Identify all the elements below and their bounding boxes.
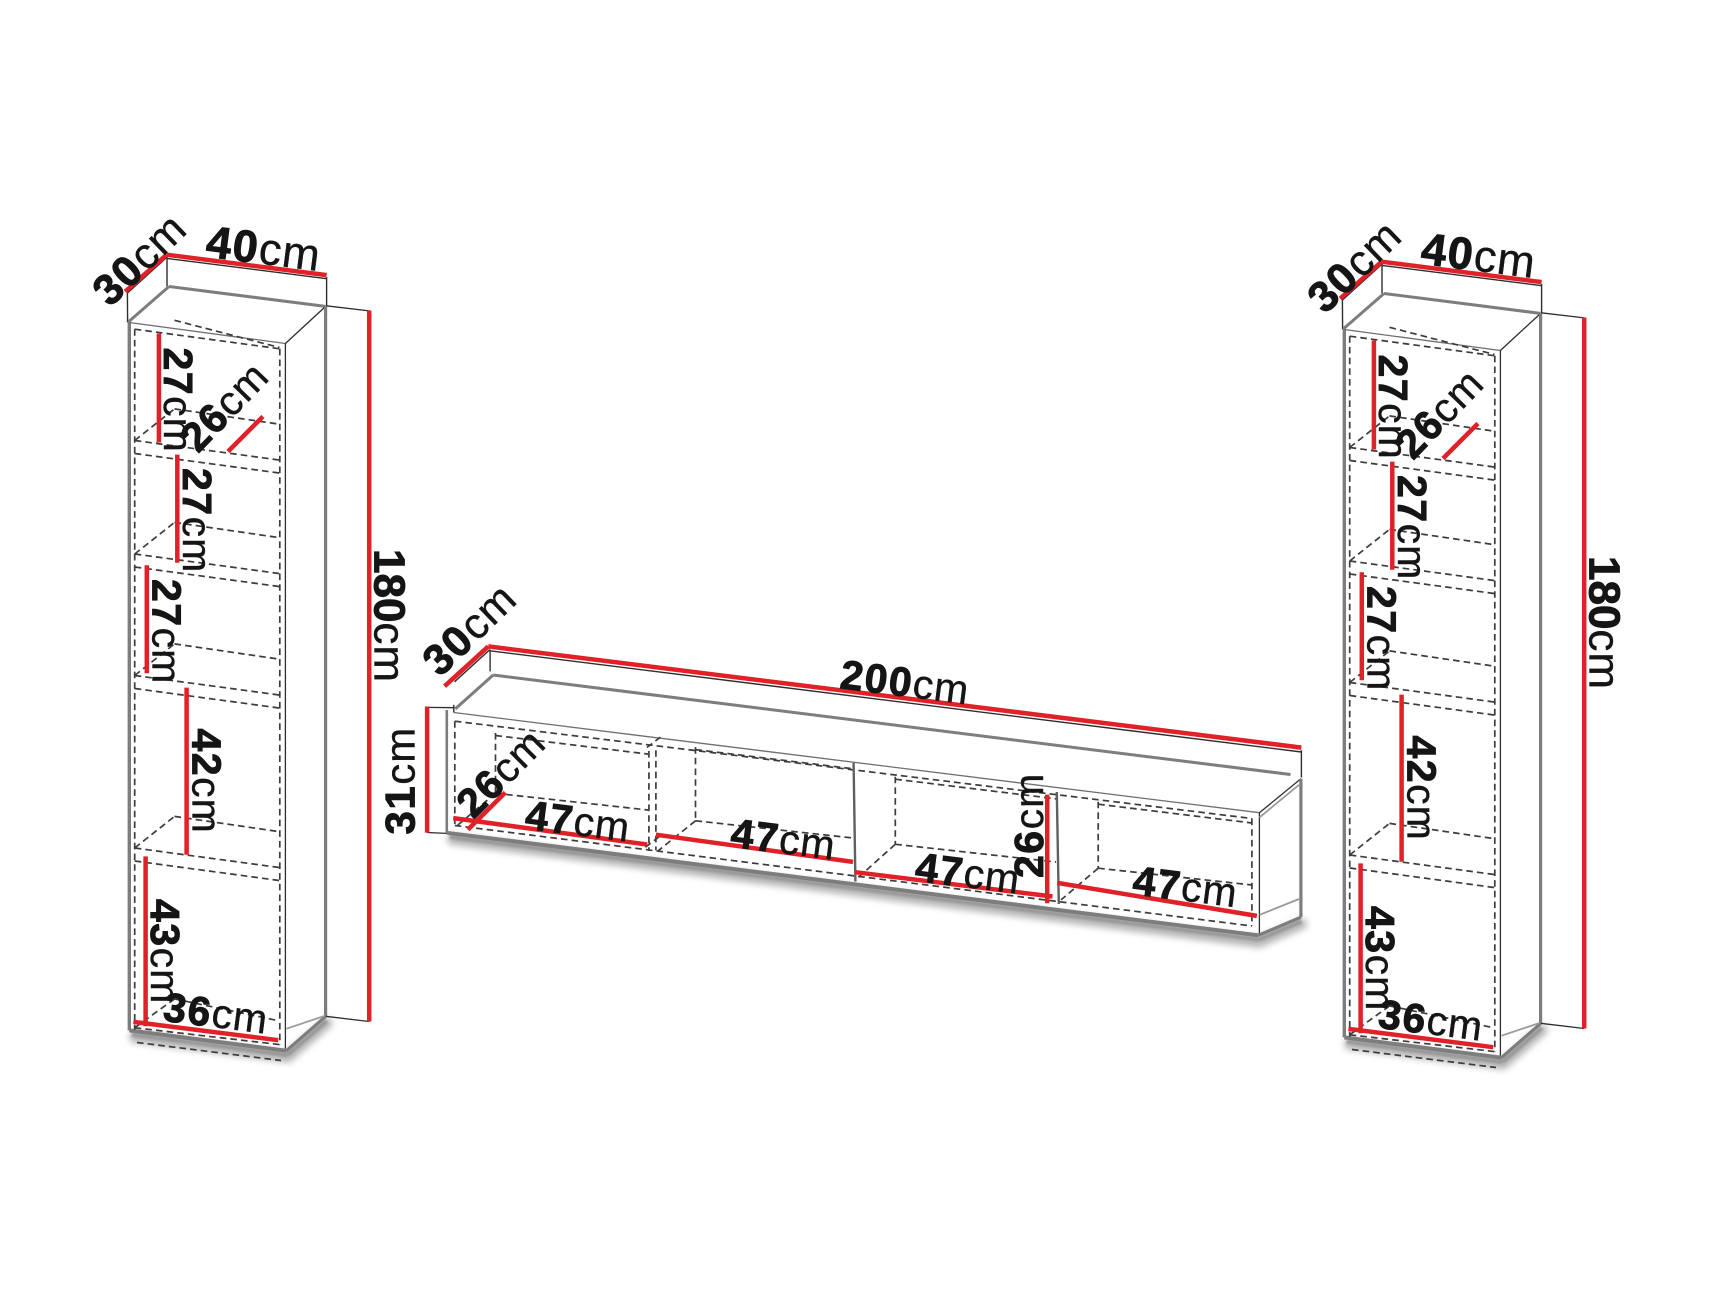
- svg-text:26cm: 26cm: [1006, 773, 1052, 878]
- svg-text:180cm: 180cm: [365, 549, 414, 683]
- svg-text:27cm: 27cm: [144, 579, 190, 684]
- svg-text:31cm: 31cm: [377, 727, 424, 835]
- svg-text:42cm: 42cm: [184, 729, 230, 834]
- svg-text:27cm: 27cm: [174, 468, 220, 573]
